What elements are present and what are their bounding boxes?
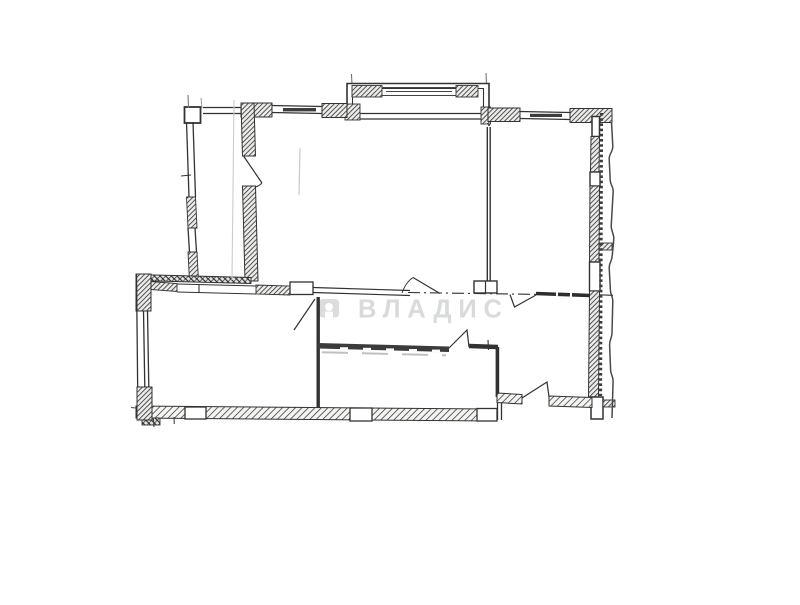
- svg-text:ВЛАДИС: ВЛАДИС: [358, 296, 509, 324]
